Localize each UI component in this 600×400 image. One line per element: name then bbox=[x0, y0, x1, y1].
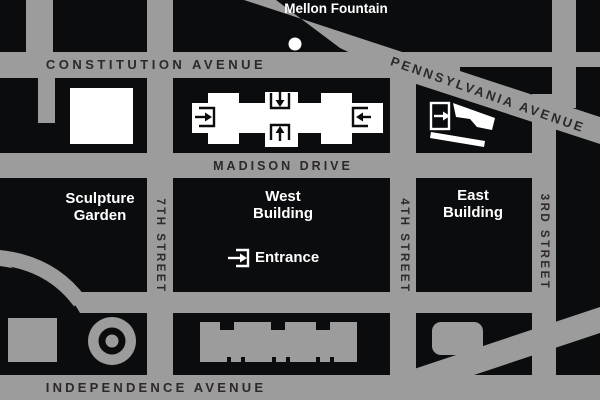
fountain-dot-icon bbox=[289, 38, 302, 51]
street-label-3rd: 3RD STREET bbox=[538, 177, 550, 307]
label-east-building: East Building bbox=[428, 187, 518, 221]
pavilion-footprint bbox=[70, 88, 133, 144]
street-map: CONSTITUTION AVENUE PENNSYLVANIA AVENUE … bbox=[0, 0, 600, 400]
street-label-madison: MADISON DRIVE bbox=[198, 159, 368, 173]
label-west-building: West Building bbox=[238, 188, 328, 222]
label-sculpture-garden: Sculpture Garden bbox=[40, 190, 160, 224]
third-street-north bbox=[552, 0, 576, 108]
street-label-4th: 4TH STREET bbox=[398, 181, 410, 311]
street-label-independence: INDEPENDENCE AVENUE bbox=[40, 380, 272, 395]
ring-building-center bbox=[106, 335, 119, 348]
street-label-constitution: CONSTITUTION AVENUE bbox=[40, 57, 272, 72]
label-entrance: Entrance bbox=[255, 249, 319, 266]
street-stub bbox=[38, 78, 55, 123]
label-mellon-fountain: Mellon Fountain bbox=[284, 1, 388, 16]
square-footprint bbox=[8, 318, 57, 362]
rounded-footprint bbox=[432, 322, 483, 355]
